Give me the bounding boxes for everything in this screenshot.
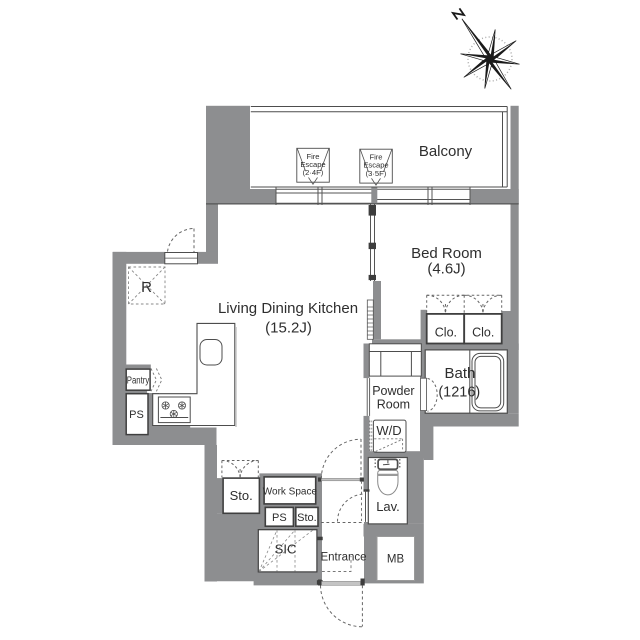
svg-text:Lav.: Lav. — [376, 499, 400, 514]
svg-text:(15.2J): (15.2J) — [265, 320, 312, 337]
svg-text:MB: MB — [387, 554, 405, 566]
svg-text:Balcony: Balcony — [419, 143, 473, 160]
svg-text:Living Dining Kitchen: Living Dining Kitchen — [218, 300, 358, 317]
svg-text:Powder: Powder — [372, 384, 414, 398]
svg-text:Clo.: Clo. — [435, 325, 457, 339]
svg-text:W/D: W/D — [376, 423, 401, 438]
svg-text:R: R — [141, 279, 152, 296]
svg-text:Bed Room: Bed Room — [411, 245, 482, 262]
svg-text:Sto.: Sto. — [230, 488, 253, 503]
svg-text:(1216): (1216) — [438, 384, 480, 400]
svg-text:PS: PS — [272, 512, 287, 524]
svg-text:(3·5F): (3·5F) — [366, 169, 387, 178]
svg-text:Bath: Bath — [444, 365, 475, 382]
svg-text:Entrance: Entrance — [320, 551, 366, 563]
svg-text:Sto.: Sto. — [297, 512, 317, 524]
svg-text:Clo.: Clo. — [472, 325, 494, 339]
svg-text:Pantry: Pantry — [127, 375, 150, 386]
svg-text:PS: PS — [129, 409, 144, 421]
svg-text:SIC: SIC — [275, 542, 297, 557]
svg-text:Work Space: Work Space — [263, 486, 318, 497]
svg-text:(2·4F): (2·4F) — [303, 168, 324, 177]
svg-text:(4.6J): (4.6J) — [427, 260, 465, 277]
svg-text:Room: Room — [377, 398, 410, 412]
